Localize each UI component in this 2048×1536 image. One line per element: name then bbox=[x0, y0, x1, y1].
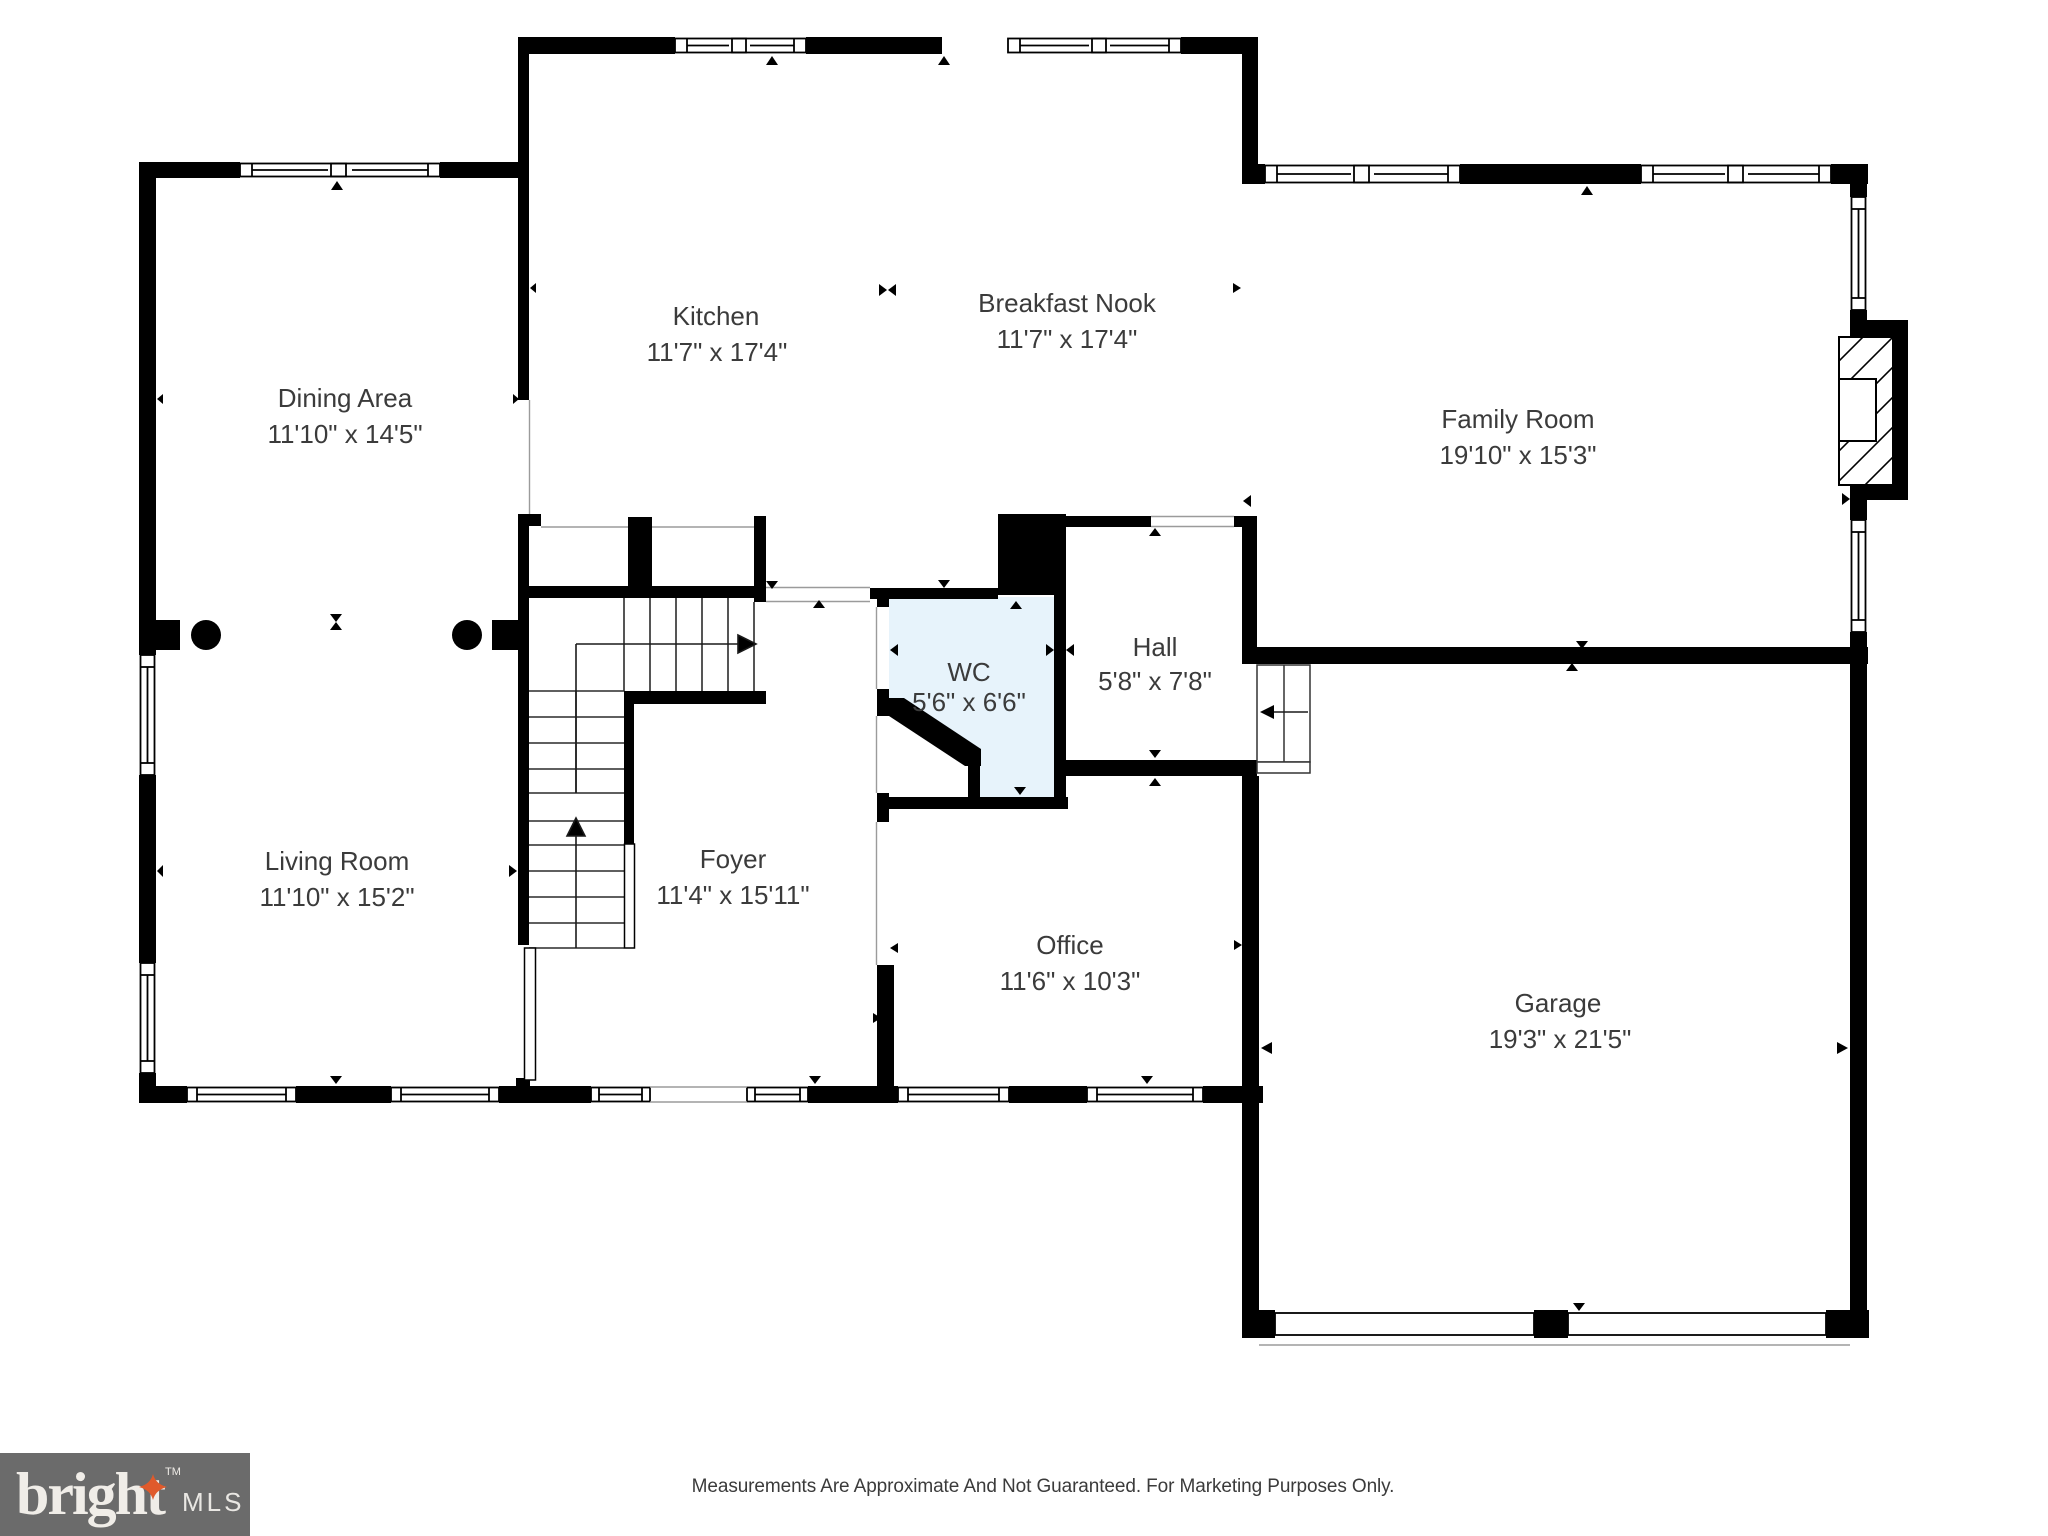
svg-text:Measurements Are Approximate A: Measurements Are Approximate And Not Gua… bbox=[692, 1476, 1395, 1497]
svg-text:11'7" x 17'4": 11'7" x 17'4" bbox=[997, 324, 1138, 354]
svg-text:Office: Office bbox=[1036, 930, 1103, 960]
svg-text:19'10" x 15'3": 19'10" x 15'3" bbox=[1439, 440, 1596, 470]
svg-text:11'7" x 17'4": 11'7" x 17'4" bbox=[647, 337, 788, 367]
svg-text:Family Room: Family Room bbox=[1441, 404, 1594, 434]
svg-text:Kitchen: Kitchen bbox=[673, 301, 760, 331]
svg-text:11'6" x 10'3": 11'6" x 10'3" bbox=[1000, 966, 1141, 996]
svg-text:MLS: MLS bbox=[182, 1487, 244, 1517]
svg-text:5'6" x 6'6": 5'6" x 6'6" bbox=[912, 687, 1026, 717]
svg-text:WC: WC bbox=[947, 657, 990, 687]
svg-text:5'8" x 7'8": 5'8" x 7'8" bbox=[1098, 666, 1212, 696]
svg-text:TM: TM bbox=[165, 1466, 181, 1478]
svg-text:Living Room: Living Room bbox=[265, 846, 410, 876]
svg-text:Garage: Garage bbox=[1515, 988, 1602, 1018]
svg-text:19'3" x 21'5": 19'3" x 21'5" bbox=[1489, 1024, 1632, 1054]
svg-text:bright: bright bbox=[16, 1461, 166, 1527]
svg-text:Foyer: Foyer bbox=[700, 844, 767, 874]
svg-text:Dining Area: Dining Area bbox=[278, 383, 413, 413]
svg-text:11'10" x 15'2": 11'10" x 15'2" bbox=[259, 882, 414, 912]
svg-text:11'4" x 15'11": 11'4" x 15'11" bbox=[656, 880, 809, 910]
svg-text:Hall: Hall bbox=[1133, 632, 1178, 662]
svg-text:11'10" x 14'5": 11'10" x 14'5" bbox=[267, 419, 422, 449]
svg-text:Breakfast Nook: Breakfast Nook bbox=[978, 288, 1157, 318]
